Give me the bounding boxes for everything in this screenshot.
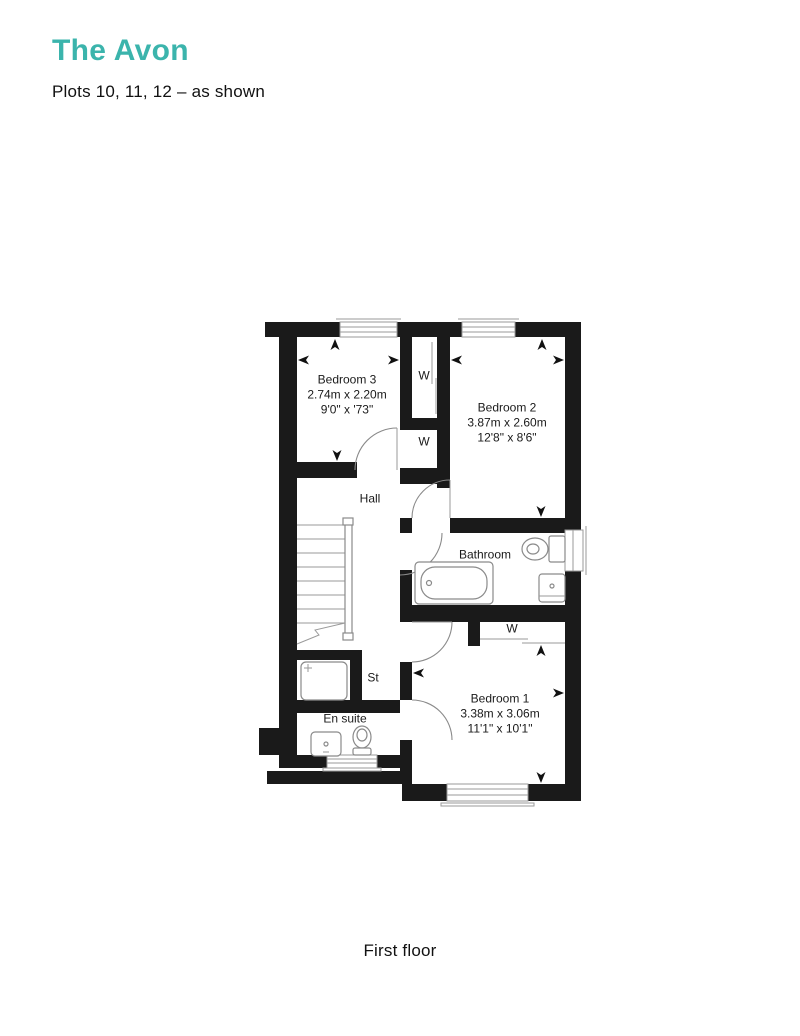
bedroom3-metric: 2.74m x 2.20m (307, 388, 386, 403)
label-bathroom: Bathroom (459, 548, 511, 563)
wall-right-a (565, 322, 581, 532)
wall-wardrobe1-left (400, 337, 412, 427)
label-bedroom2: Bedroom 2 3.87m x 2.60m 12'8" x 8'6" (467, 401, 546, 446)
wall-ensuite-bottom-a (297, 755, 327, 768)
window-bedroom2 (458, 319, 519, 337)
wall-bed1-bottom-a (402, 784, 447, 801)
sliding-door-wardrobe-bath (480, 639, 565, 643)
arrow-up-icon (537, 645, 546, 656)
wall-bed2-bath (450, 518, 565, 533)
bedroom1-name: Bedroom 1 (460, 692, 539, 707)
door-bedroom1 (412, 622, 452, 662)
stair-newel-top (343, 518, 353, 525)
door-bedroom3 (355, 428, 397, 470)
window-ensuite (323, 755, 381, 771)
wall-right-b (565, 569, 581, 801)
wall-bath-bottom (400, 605, 565, 622)
stair-rail (345, 522, 352, 636)
arrow-down-icon (333, 450, 342, 461)
window-bedroom3 (336, 319, 401, 337)
sliding-door-wardrobe1 (432, 342, 436, 414)
ensuite-sink (311, 732, 341, 756)
wall-chimney (259, 728, 279, 755)
wall-wbath-left (468, 622, 480, 646)
bedroom1-imperial: 11'1" x 10'1" (460, 722, 539, 737)
floor-plan (239, 312, 599, 817)
wall-wardrobe2-bottom (400, 468, 437, 484)
wall-left (279, 322, 297, 768)
stairs (297, 518, 353, 644)
window-bedroom1 (441, 784, 534, 806)
ensuite-toilet (353, 726, 371, 755)
wall-shower-top (297, 650, 350, 660)
plots-subtitle: Plots 10, 11, 12 – as shown (52, 82, 265, 102)
wall-bed1-left-a (400, 662, 412, 700)
bedroom2-name: Bedroom 2 (467, 401, 546, 416)
window-bathroom (565, 526, 586, 575)
label-bedroom1: Bedroom 1 3.38m x 3.06m 11'1" x 10'1" (460, 692, 539, 737)
wall-wardrobe1-bottom (400, 418, 437, 430)
bedroom2-imperial: 12'8" x 8'6" (467, 431, 546, 446)
arrow-left-icon (413, 669, 424, 678)
label-storage: St (367, 671, 378, 686)
wall-bath-door-stub (400, 518, 412, 533)
wall-top-a (265, 322, 340, 337)
bedroom2-metric: 3.87m x 2.60m (467, 416, 546, 431)
arrow-right-icon (553, 356, 564, 365)
wall-bed1-bottom-b (528, 784, 581, 801)
wall-shower-st (350, 650, 362, 702)
label-wardrobe-2: W (418, 435, 429, 450)
arrow-left-icon (451, 356, 462, 365)
floor-caption: First floor (0, 941, 800, 961)
arrow-down-icon (537, 772, 546, 783)
arrow-right-icon (388, 356, 399, 365)
arrow-right-icon (553, 689, 564, 698)
label-bedroom3: Bedroom 3 2.74m x 2.20m 9'0" x '73" (307, 373, 386, 418)
bedroom3-name: Bedroom 3 (307, 373, 386, 388)
label-ensuite: En suite (323, 712, 366, 727)
arrow-down-icon (537, 506, 546, 517)
arrow-up-icon (331, 339, 340, 350)
bathroom-toilet (522, 536, 565, 562)
stair-break-line (297, 623, 345, 644)
label-wardrobe-3: W (506, 622, 517, 637)
door-ensuite (412, 700, 452, 740)
stair-newel-bottom (343, 633, 353, 640)
bathroom-sink (539, 574, 565, 602)
shower (301, 662, 347, 700)
arrow-up-icon (538, 339, 547, 350)
page-title: The Avon (52, 34, 189, 68)
wall-ensuite-step (267, 771, 405, 784)
bedroom3-imperial: 9'0" x '73" (307, 403, 386, 418)
label-wardrobe-1: W (418, 369, 429, 384)
bedroom1-metric: 3.38m x 3.06m (460, 707, 539, 722)
label-hall: Hall (360, 492, 381, 507)
bathtub (415, 562, 493, 604)
wall-top-b (397, 322, 462, 337)
arrow-left-icon (298, 356, 309, 365)
wall-bed3-hall (279, 462, 357, 478)
wall-ensuite-bottom-b (377, 755, 412, 768)
wall-wardrobe-bed2 (437, 337, 450, 488)
